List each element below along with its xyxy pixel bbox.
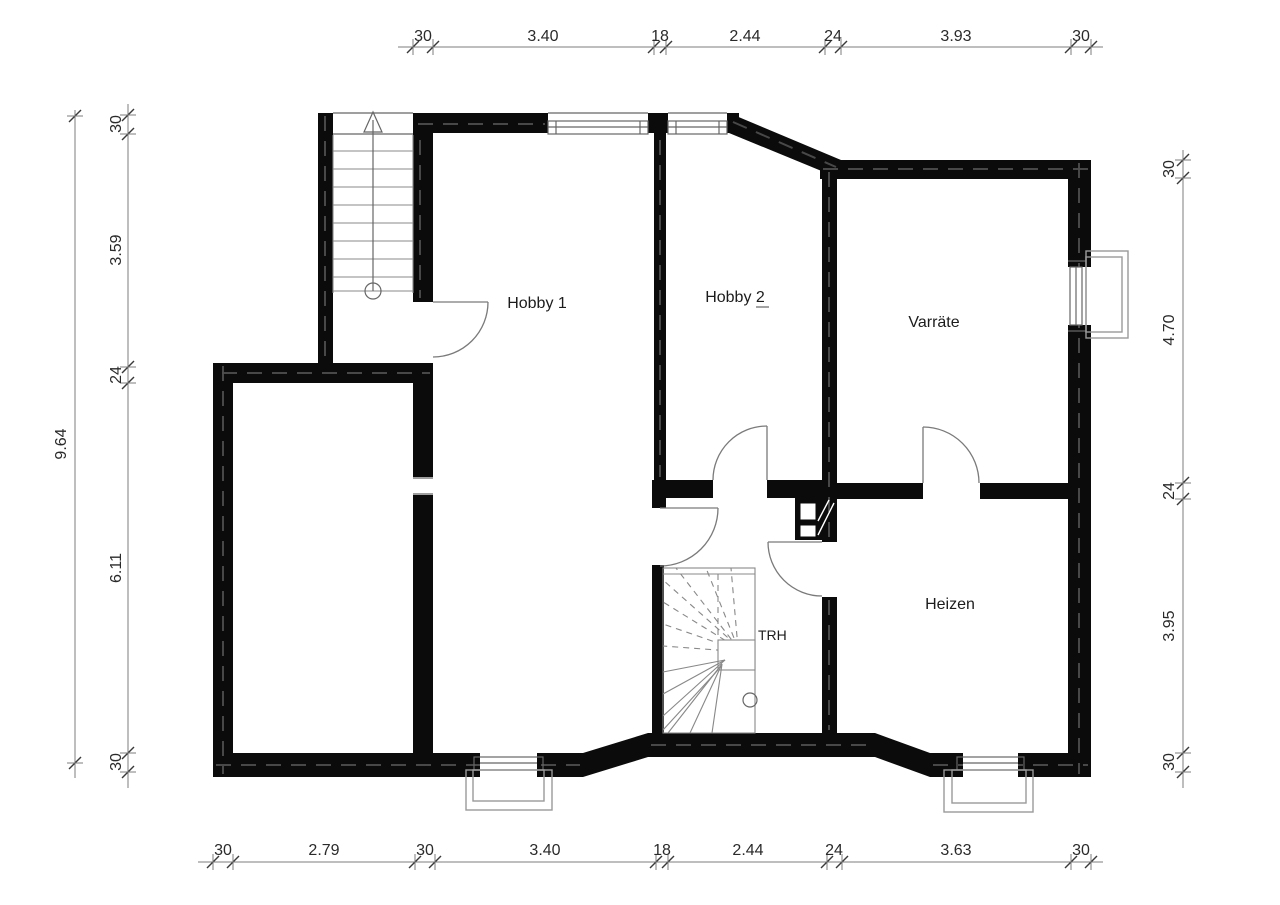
diagonal-wall-bottom-right	[875, 733, 930, 777]
stair-right-wall-upper	[413, 133, 433, 302]
winder-solid-treads	[663, 660, 725, 733]
winder-dashed-line	[706, 568, 738, 648]
dim-label: 24	[108, 366, 125, 384]
dim-label: 30	[108, 115, 125, 133]
room-labels: Hobby 1 Hobby 2 Varräte Heizen TRH	[507, 289, 975, 643]
diagonal-wall-bottom-left	[583, 733, 648, 777]
storeroom-right-wall-b	[413, 495, 433, 753]
floor-plan-canvas: 30 3.40 18 2.44 24 3.93 30 30 2.79 30 3.…	[0, 0, 1280, 905]
dim-label: 3.63	[940, 842, 971, 859]
room-label-hobby1: Hobby 1	[507, 295, 567, 312]
dim-label: 30	[414, 28, 432, 45]
storeroom-right-wall-a	[413, 365, 433, 477]
dim-label: 24	[824, 28, 842, 45]
dim-label: 18	[651, 28, 669, 45]
dim-label: 30	[1072, 28, 1090, 45]
doors	[433, 302, 979, 596]
dim-label: 30	[214, 842, 232, 859]
dim-label: 3.95	[1161, 610, 1178, 641]
dim-label: 24	[825, 842, 843, 859]
dim-label: 18	[653, 842, 671, 859]
floor-plan-svg: 30 3.40 18 2.44 24 3.93 30 30 2.79 30 3.…	[0, 0, 1280, 905]
window-bottom-heizen	[957, 753, 1024, 777]
bottom-wall-right-b	[1018, 753, 1091, 777]
dim-label: 3.93	[940, 28, 971, 45]
dim-label: 6.11	[108, 553, 125, 583]
dim-label: 3.40	[529, 842, 560, 859]
winder-staircase-trh	[663, 568, 757, 733]
top-wall-pier	[648, 113, 668, 133]
room-label-hobby2: Hobby 2	[705, 289, 765, 306]
dim-label: 30	[1072, 842, 1090, 859]
stair-enclosure-left-wall	[652, 565, 664, 733]
dim-label: 3.40	[527, 28, 558, 45]
dim-label-total: 9.64	[53, 428, 70, 459]
varraete-bottom-wall-right	[980, 483, 1068, 499]
hall-top-wall-left	[652, 480, 713, 498]
winder-dashed-line	[731, 568, 738, 648]
hobby-divider-pier	[652, 497, 666, 508]
room-label-trh: TRH	[758, 627, 787, 643]
storeroom-opening	[413, 478, 433, 494]
room-label-heizen: Heizen	[925, 596, 975, 613]
door-stairs-hobby1	[433, 302, 488, 357]
window-top-hobby2	[668, 113, 727, 134]
stair-landing-notch	[718, 640, 755, 670]
window-right-varraete	[1068, 261, 1091, 331]
dim-label: 30	[108, 753, 125, 771]
door-hall-hobby2	[713, 426, 767, 480]
hall-top-wall-right	[767, 480, 822, 498]
door-heizen-varraete	[923, 427, 979, 483]
door-hall-heizen	[768, 542, 822, 596]
dim-label: 4.70	[1161, 314, 1178, 345]
dim-label: 30	[1161, 753, 1178, 771]
window-bottom-hobby1	[474, 753, 543, 777]
winder-dashed-treads	[663, 568, 744, 652]
room-label-varraete: Varräte	[908, 314, 959, 331]
dim-label: 2.79	[308, 842, 339, 859]
straight-staircase	[333, 112, 413, 299]
dim-label: 30	[1161, 160, 1178, 178]
door-hobby1-hall	[660, 508, 718, 566]
dim-label: 2.44	[729, 28, 760, 45]
window-top-hobby1	[548, 113, 648, 134]
winder-tread-line	[663, 660, 725, 672]
dim-label: 2.44	[732, 842, 763, 859]
walls	[213, 113, 1091, 777]
dim-label: 3.59	[108, 234, 125, 265]
dim-label: 24	[1161, 482, 1178, 500]
dim-label: 30	[416, 842, 434, 859]
varraete-bottom-wall-left	[837, 483, 923, 499]
winder-dashed-line	[676, 568, 738, 648]
